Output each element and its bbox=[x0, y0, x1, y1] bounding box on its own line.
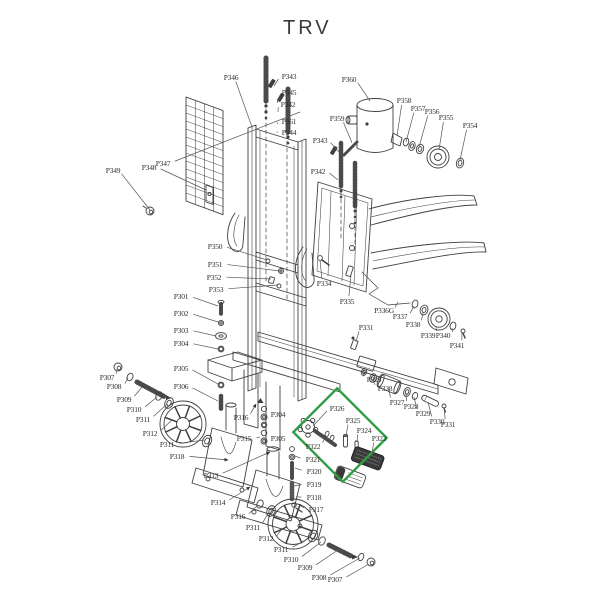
svg-text:P311: P311 bbox=[274, 545, 289, 554]
part-label-P318: P318 bbox=[170, 452, 228, 461]
svg-text:P334: P334 bbox=[317, 279, 332, 288]
part-label-P350: P350 bbox=[208, 242, 267, 260]
svg-text:P357: P357 bbox=[411, 104, 426, 113]
part-label-P346: P346 bbox=[224, 73, 252, 127]
svg-text:P338: P338 bbox=[406, 320, 421, 329]
hydraulic-cylinder-assembly bbox=[344, 99, 465, 169]
svg-text:P345: P345 bbox=[282, 88, 297, 97]
part-label-P334: P334 bbox=[317, 260, 332, 288]
part-labels: P346P343P345P342P361P344P349P348P347P343… bbox=[100, 72, 478, 584]
svg-text:P319: P319 bbox=[307, 480, 322, 489]
svg-text:P313: P313 bbox=[204, 471, 219, 480]
svg-text:P312: P312 bbox=[259, 534, 274, 543]
svg-text:P327: P327 bbox=[390, 398, 405, 407]
svg-text:P344: P344 bbox=[282, 128, 297, 137]
part-label-P344: P344 bbox=[277, 128, 297, 137]
svg-text:P351: P351 bbox=[208, 260, 223, 269]
svg-text:P349: P349 bbox=[106, 166, 121, 175]
svg-text:P318: P318 bbox=[307, 493, 322, 502]
machine-drawing bbox=[114, 58, 486, 566]
svg-text:P339: P339 bbox=[421, 331, 436, 340]
part-label-P354: P354 bbox=[460, 121, 478, 160]
svg-text:P311: P311 bbox=[246, 523, 261, 532]
svg-text:P355: P355 bbox=[439, 113, 454, 122]
svg-text:P321: P321 bbox=[306, 455, 321, 464]
svg-text:P358: P358 bbox=[397, 96, 412, 105]
svg-text:P354: P354 bbox=[463, 121, 478, 130]
part-label-P329: P329 bbox=[363, 373, 381, 384]
svg-text:P350: P350 bbox=[208, 242, 223, 251]
svg-text:P316: P316 bbox=[234, 413, 249, 422]
svg-text:P320: P320 bbox=[307, 467, 322, 476]
svg-text:P315: P315 bbox=[237, 434, 252, 443]
part-label-P319: P319 bbox=[294, 480, 322, 489]
svg-text:P325: P325 bbox=[346, 416, 361, 425]
svg-text:P318: P318 bbox=[170, 452, 185, 461]
svg-text:P301: P301 bbox=[174, 292, 189, 301]
svg-text:P304: P304 bbox=[174, 339, 189, 348]
svg-text:P308: P308 bbox=[107, 382, 122, 391]
svg-text:P341: P341 bbox=[450, 341, 465, 350]
part-label-P339: P339 bbox=[421, 326, 437, 340]
svg-text:P342: P342 bbox=[311, 167, 326, 176]
part-label-P315: P315 bbox=[237, 434, 260, 443]
svg-text:P307: P307 bbox=[100, 373, 115, 382]
svg-text:P329: P329 bbox=[416, 409, 431, 418]
part-label-P337: P337 bbox=[393, 306, 414, 321]
part-label-P361: P361 bbox=[277, 117, 297, 126]
svg-text:P335: P335 bbox=[340, 297, 355, 306]
svg-text:P326: P326 bbox=[330, 404, 345, 413]
svg-text:P360: P360 bbox=[342, 75, 357, 84]
part-label-P356: P356 bbox=[419, 107, 440, 147]
svg-text:P331: P331 bbox=[441, 420, 456, 429]
part-label-P303: P303 bbox=[174, 326, 216, 336]
part-label-P311: P311 bbox=[160, 440, 204, 449]
svg-text:P304: P304 bbox=[271, 410, 286, 419]
part-label-P307: P307 bbox=[100, 369, 117, 382]
svg-text:P317: P317 bbox=[309, 505, 324, 514]
part-label-P306: P306 bbox=[174, 382, 218, 401]
part-label-P318: P318 bbox=[296, 493, 322, 502]
svg-text:P359: P359 bbox=[330, 114, 345, 123]
svg-text:P322: P322 bbox=[306, 442, 321, 451]
part-label-P351: P351 bbox=[208, 260, 280, 271]
svg-text:P309: P309 bbox=[117, 395, 132, 404]
part-label-P320: P320 bbox=[295, 467, 322, 476]
part-label-P316: P316 bbox=[231, 505, 258, 521]
svg-text:P323: P323 bbox=[372, 434, 387, 443]
part-label-P341: P341 bbox=[450, 333, 465, 350]
svg-text:P340: P340 bbox=[436, 331, 451, 340]
svg-text:P336G: P336G bbox=[374, 306, 395, 315]
svg-text:P308: P308 bbox=[312, 573, 327, 582]
part-label-P305: P305 bbox=[174, 364, 218, 384]
svg-text:P343: P343 bbox=[282, 72, 297, 81]
svg-text:P348: P348 bbox=[142, 163, 157, 172]
mast-assembly bbox=[248, 125, 306, 401]
svg-text:P328: P328 bbox=[378, 384, 393, 393]
part-label-P307: P307 bbox=[328, 564, 369, 584]
svg-text:P302: P302 bbox=[174, 309, 189, 318]
svg-text:P307: P307 bbox=[328, 575, 343, 584]
svg-text:P331: P331 bbox=[359, 323, 374, 332]
part-label-P348: P348 bbox=[142, 163, 206, 190]
part-label-P352: P352 bbox=[207, 273, 271, 282]
svg-text:P343: P343 bbox=[313, 136, 328, 145]
part-label-P338: P338 bbox=[406, 313, 423, 329]
forks bbox=[369, 195, 486, 269]
part-label-P359: P359 bbox=[330, 114, 352, 143]
backrest-bracket bbox=[143, 185, 213, 215]
svg-text:P311: P311 bbox=[136, 415, 151, 424]
svg-text:P314: P314 bbox=[211, 498, 226, 507]
part-label-P349: P349 bbox=[106, 166, 150, 210]
part-label-P316: P316 bbox=[234, 404, 256, 422]
part-label-P305: P305 bbox=[266, 434, 286, 443]
svg-text:P316: P316 bbox=[231, 512, 246, 521]
part-label-P304: P304 bbox=[174, 339, 218, 349]
part-label-P343: P343 bbox=[274, 72, 297, 86]
svg-text:P356: P356 bbox=[425, 107, 440, 116]
svg-text:P346: P346 bbox=[224, 73, 239, 82]
svg-text:P310: P310 bbox=[127, 405, 142, 414]
svg-text:P347: P347 bbox=[156, 159, 171, 168]
handle-loops bbox=[228, 213, 315, 287]
svg-text:P309: P309 bbox=[298, 563, 313, 572]
part-label-P360: P360 bbox=[342, 75, 370, 101]
part-label-P331: P331 bbox=[356, 323, 374, 342]
exploded-parts-diagram: TRV bbox=[0, 0, 600, 600]
svg-text:P305: P305 bbox=[271, 434, 286, 443]
page-title: TRV bbox=[283, 17, 332, 39]
part-label-P313: P313 bbox=[204, 452, 270, 480]
part-label-P301: P301 bbox=[174, 292, 218, 306]
part-label-P321: P321 bbox=[295, 455, 321, 464]
frame-beams bbox=[233, 332, 468, 394]
svg-text:P311: P311 bbox=[160, 440, 175, 449]
svg-text:P303: P303 bbox=[174, 326, 189, 335]
svg-text:P342: P342 bbox=[281, 100, 296, 109]
svg-text:P324: P324 bbox=[357, 426, 372, 435]
part-label-P309: P309 bbox=[298, 550, 338, 572]
svg-text:P312: P312 bbox=[143, 429, 158, 438]
part-label-P357: P357 bbox=[406, 104, 426, 142]
part-label-P355: P355 bbox=[439, 113, 454, 150]
part-label-P347: P347 bbox=[156, 112, 300, 168]
part-label-P311: P311 bbox=[246, 512, 269, 532]
part-label-P342: P342 bbox=[311, 167, 338, 180]
part-label-P310: P310 bbox=[284, 542, 321, 564]
svg-text:P353: P353 bbox=[209, 285, 224, 294]
part-label-P304: P304 bbox=[266, 410, 286, 419]
svg-text:P310: P310 bbox=[284, 555, 299, 564]
load-backrest-mesh bbox=[186, 97, 223, 215]
part-label-P324: P324 bbox=[357, 426, 372, 442]
svg-text:P305: P305 bbox=[174, 364, 189, 373]
steer-shaft-hardware bbox=[208, 300, 262, 409]
svg-text:P352: P352 bbox=[207, 273, 222, 282]
part-label-P302: P302 bbox=[174, 309, 218, 322]
svg-text:P306: P306 bbox=[174, 382, 189, 391]
diagram-page: TRV bbox=[0, 0, 600, 600]
